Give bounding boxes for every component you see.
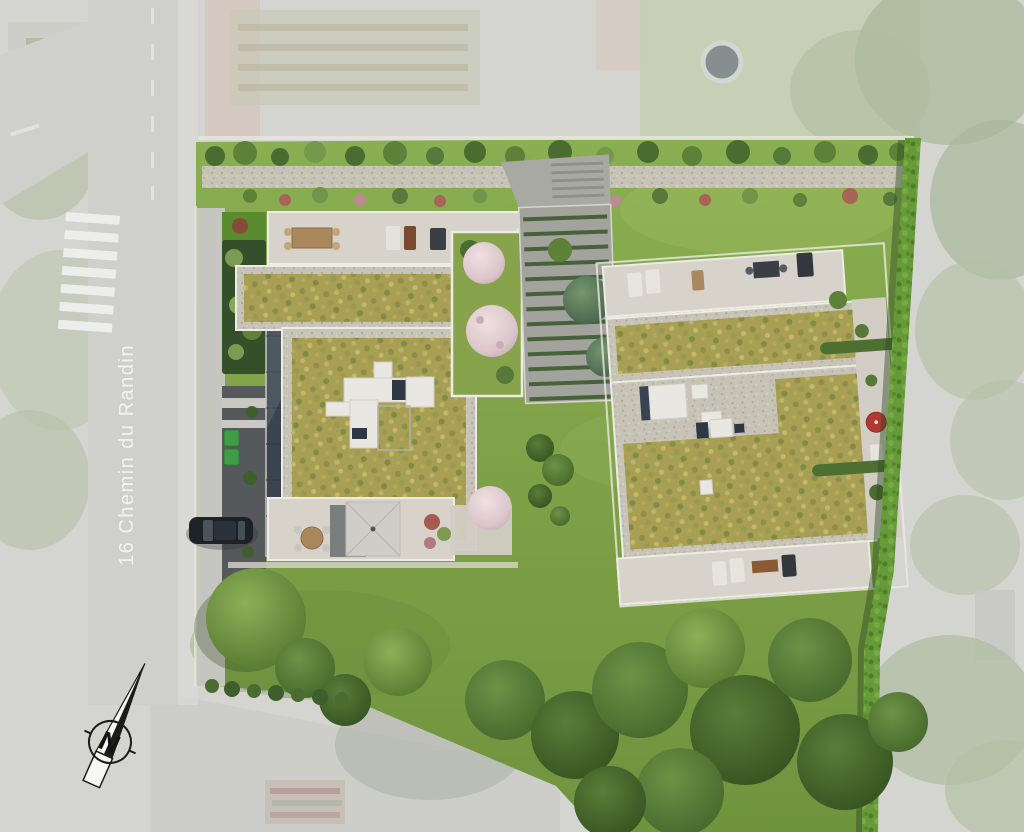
shrub	[829, 291, 847, 309]
entry-walk-band	[222, 420, 266, 428]
blossom-tree	[463, 242, 505, 284]
faded-driveway	[596, 0, 642, 70]
east-green-roof-patch	[775, 373, 861, 439]
parked-car	[186, 517, 258, 550]
shrub	[426, 147, 444, 165]
shrub	[233, 141, 257, 165]
chair	[294, 544, 302, 552]
faded-tree	[790, 30, 930, 150]
shrub	[682, 146, 702, 166]
shrub	[335, 692, 349, 706]
lounger	[729, 558, 745, 583]
chair	[284, 242, 292, 250]
skylight	[406, 377, 434, 407]
shrub	[225, 249, 243, 267]
blossom-courtyard	[452, 232, 522, 396]
flower-shrub	[473, 189, 487, 203]
flower-shrub	[424, 514, 440, 530]
tree	[636, 748, 724, 832]
wood-table	[292, 228, 332, 248]
chair	[322, 544, 330, 552]
car-roof	[214, 521, 236, 540]
flower-shrub	[312, 187, 328, 203]
bush	[550, 506, 570, 526]
faded-garden-row	[238, 64, 468, 71]
skylight-glass	[734, 423, 745, 433]
shrub	[246, 406, 258, 418]
flower-shrub	[742, 188, 758, 204]
parasol-pole	[371, 527, 376, 532]
lounger	[627, 272, 643, 297]
lounger	[781, 554, 797, 577]
flower-shrub	[699, 194, 711, 206]
shrub	[291, 688, 305, 702]
flower-shrub	[354, 194, 366, 206]
shrub	[205, 679, 219, 693]
lane-dash	[151, 80, 154, 96]
tree	[364, 628, 432, 696]
tree	[548, 238, 572, 262]
blossom-tree	[468, 486, 512, 530]
round-table	[301, 527, 323, 549]
wood-bench	[752, 559, 779, 573]
site-plan-svg: 16 Chemin du Randin	[0, 0, 1024, 832]
south-path	[228, 562, 518, 568]
skylight-glass	[352, 428, 367, 439]
bush	[542, 454, 574, 486]
skylight	[326, 402, 352, 416]
flower-shrub	[842, 188, 858, 204]
lane-dash	[151, 186, 154, 200]
faded-garden-row	[238, 44, 468, 51]
lounger	[645, 269, 661, 294]
tree	[768, 618, 852, 702]
shrub	[464, 141, 486, 163]
chair	[322, 526, 330, 534]
faded-yard-row	[272, 800, 342, 806]
shrub	[383, 141, 407, 165]
shrub	[224, 681, 240, 697]
shrub	[242, 546, 254, 558]
shrub	[345, 146, 365, 166]
skylight-glass	[392, 380, 406, 400]
site-plan-canvas: 16 Chemin du Randin	[0, 0, 1024, 832]
flower-shrub	[437, 527, 451, 541]
car-windshield	[203, 520, 213, 541]
flower-shrub	[652, 188, 668, 204]
lounger	[430, 228, 446, 250]
flower-shrub	[424, 537, 436, 549]
faded-garden-row	[238, 84, 468, 91]
skylight	[710, 418, 733, 437]
red-shrub	[232, 218, 248, 234]
lounger	[386, 226, 400, 250]
lounger	[404, 226, 416, 250]
shrub	[773, 147, 791, 165]
dark-table	[753, 261, 780, 279]
street-name-label: 16 Chemin du Randin	[116, 344, 138, 566]
flower-shrub	[243, 189, 257, 203]
shrub	[814, 141, 836, 163]
east-main-green-roof	[623, 427, 868, 549]
lane-dash	[151, 116, 154, 132]
flower-shrub	[392, 188, 408, 204]
blossom-speckle	[496, 341, 504, 349]
shrub	[247, 684, 261, 698]
shrub	[312, 689, 328, 705]
skylight	[691, 384, 708, 399]
faded-garden-row	[238, 24, 468, 31]
chair	[294, 526, 302, 534]
shrub	[304, 141, 326, 163]
shrub	[271, 148, 289, 166]
lane-dash	[151, 44, 154, 60]
lane-dash	[151, 152, 154, 168]
lounger	[691, 270, 704, 291]
lounger	[796, 252, 814, 277]
site-west-boundary-line	[194, 206, 197, 686]
blossom-speckle	[476, 316, 484, 324]
lounger	[712, 561, 728, 586]
shrub	[243, 471, 257, 485]
shrub	[205, 146, 225, 166]
bush	[528, 484, 552, 508]
tree	[665, 608, 745, 688]
flower-shrub	[434, 195, 446, 207]
shrub	[858, 145, 878, 165]
square-parasol	[346, 502, 400, 556]
flower-shrub	[279, 194, 291, 206]
blossom-tree	[466, 305, 518, 357]
faded-tree	[910, 495, 1020, 595]
skylight	[374, 362, 392, 378]
entry-walk-band	[222, 398, 266, 408]
chair	[284, 228, 292, 236]
faded-pool	[703, 43, 741, 81]
skylight-glass	[696, 422, 709, 439]
skylight	[700, 480, 713, 495]
shrub	[726, 140, 750, 164]
lane-dash	[151, 8, 154, 24]
shrub	[268, 685, 284, 701]
shrub	[496, 366, 514, 384]
flower-shrub	[793, 193, 807, 207]
chair	[332, 228, 340, 236]
chair	[332, 242, 340, 250]
waste-bin	[224, 449, 239, 465]
faded-yard-row	[270, 788, 340, 794]
car-rear-window	[238, 521, 245, 540]
waste-bin	[224, 430, 239, 446]
skylight	[350, 400, 378, 448]
shrub	[637, 141, 659, 163]
site-north-curb	[198, 136, 914, 140]
faded-yard-row	[270, 812, 340, 818]
tree	[868, 692, 928, 752]
shrub	[228, 344, 244, 360]
